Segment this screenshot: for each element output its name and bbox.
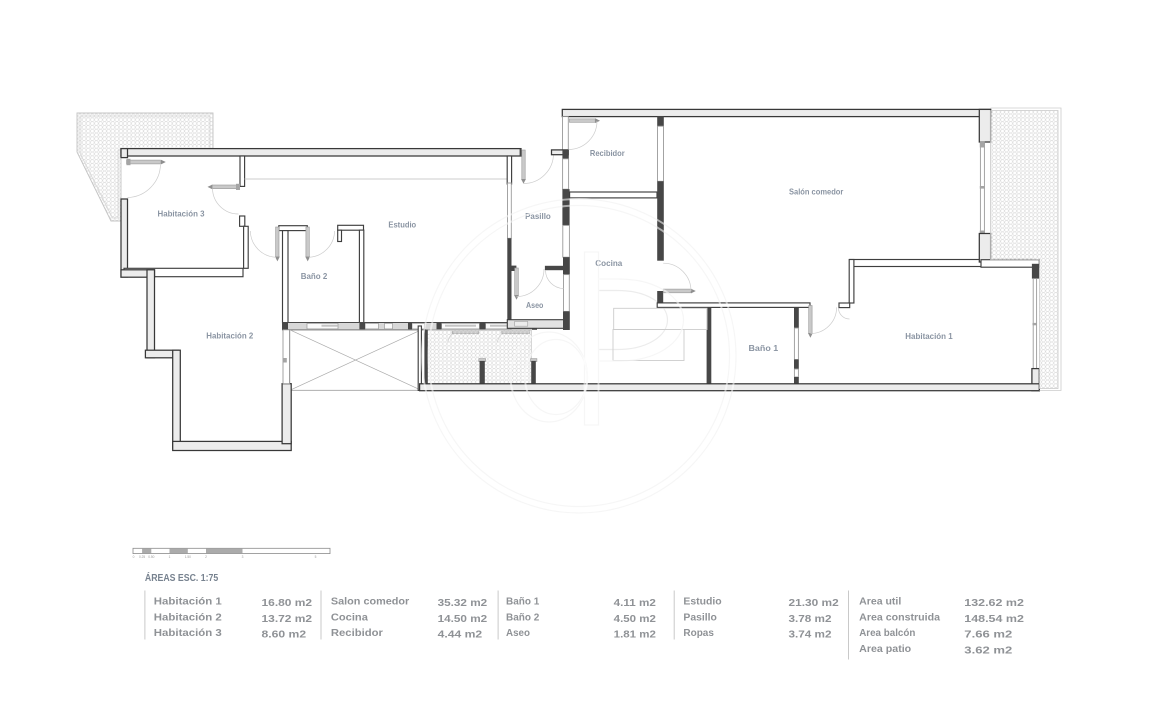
svg-text:Baño 2: Baño 2 bbox=[506, 612, 540, 623]
svg-text:3.62 m2: 3.62 m2 bbox=[964, 645, 1013, 656]
svg-text:Pasillo: Pasillo bbox=[683, 612, 717, 623]
svg-text:3.74 m2: 3.74 m2 bbox=[789, 630, 833, 641]
svg-text:0.50: 0.50 bbox=[148, 555, 154, 559]
svg-text:148.54 m2: 148.54 m2 bbox=[964, 614, 1024, 625]
svg-text:7.66 m2: 7.66 m2 bbox=[964, 630, 1013, 641]
svg-text:16.80 m2: 16.80 m2 bbox=[262, 598, 313, 609]
svg-text:2: 2 bbox=[205, 555, 207, 559]
svg-text:Salón comedor: Salón comedor bbox=[789, 186, 844, 196]
svg-text:4.50 m2: 4.50 m2 bbox=[614, 614, 657, 625]
svg-text:14.50 m2: 14.50 m2 bbox=[438, 614, 488, 625]
svg-text:13.72 m2: 13.72 m2 bbox=[262, 614, 313, 625]
svg-text:Habitación 3: Habitación 3 bbox=[158, 209, 205, 219]
svg-text:Area patio: Area patio bbox=[859, 644, 911, 655]
svg-text:Pasillo: Pasillo bbox=[525, 211, 551, 221]
svg-text:Baño 1: Baño 1 bbox=[506, 597, 540, 608]
svg-text:Area util: Area util bbox=[859, 597, 901, 608]
svg-text:Area balcón: Area balcón bbox=[859, 628, 915, 639]
svg-text:Habitación 2: Habitación 2 bbox=[206, 331, 253, 341]
svg-text:Estudio: Estudio bbox=[683, 597, 721, 608]
svg-text:Aseo: Aseo bbox=[506, 628, 530, 639]
svg-text:Cocina: Cocina bbox=[331, 612, 368, 623]
svg-text:1.81 m2: 1.81 m2 bbox=[614, 630, 657, 641]
svg-text:Aseo: Aseo bbox=[526, 300, 543, 310]
svg-text:Recibidor: Recibidor bbox=[331, 628, 383, 639]
svg-text:Habitación 1: Habitación 1 bbox=[154, 597, 222, 608]
svg-text:8.60 m2: 8.60 m2 bbox=[262, 630, 307, 641]
svg-text:21.30 m2: 21.30 m2 bbox=[789, 598, 840, 609]
svg-text:Baño 2: Baño 2 bbox=[301, 271, 328, 281]
svg-text:4.44 m2: 4.44 m2 bbox=[438, 630, 483, 641]
svg-text:132.62 m2: 132.62 m2 bbox=[964, 598, 1024, 609]
svg-text:1.50: 1.50 bbox=[185, 555, 191, 559]
svg-text:Baño 1: Baño 1 bbox=[749, 343, 779, 353]
svg-text:Salon comedor: Salon comedor bbox=[331, 597, 410, 608]
svg-text:0.25: 0.25 bbox=[139, 555, 145, 559]
svg-text:Area construida: Area construida bbox=[859, 612, 940, 623]
svg-text:3: 3 bbox=[242, 555, 244, 559]
svg-text:1: 1 bbox=[169, 555, 171, 559]
svg-text:35.32 m2: 35.32 m2 bbox=[438, 598, 488, 609]
svg-text:3.78 m2: 3.78 m2 bbox=[789, 614, 833, 625]
svg-text:0: 0 bbox=[133, 555, 135, 559]
svg-text:ÁREAS ESC. 1:75: ÁREAS ESC. 1:75 bbox=[145, 571, 219, 584]
svg-text:Habitación 1: Habitación 1 bbox=[905, 331, 953, 341]
svg-text:4.11 m2: 4.11 m2 bbox=[614, 598, 657, 609]
svg-text:5: 5 bbox=[315, 555, 317, 559]
svg-text:Recibidor: Recibidor bbox=[590, 148, 625, 158]
svg-text:Estudio: Estudio bbox=[388, 220, 416, 230]
svg-text:Habitación 3: Habitación 3 bbox=[154, 628, 222, 639]
svg-text:Ropas: Ropas bbox=[683, 628, 714, 639]
svg-text:Habitación 2: Habitación 2 bbox=[154, 612, 222, 623]
